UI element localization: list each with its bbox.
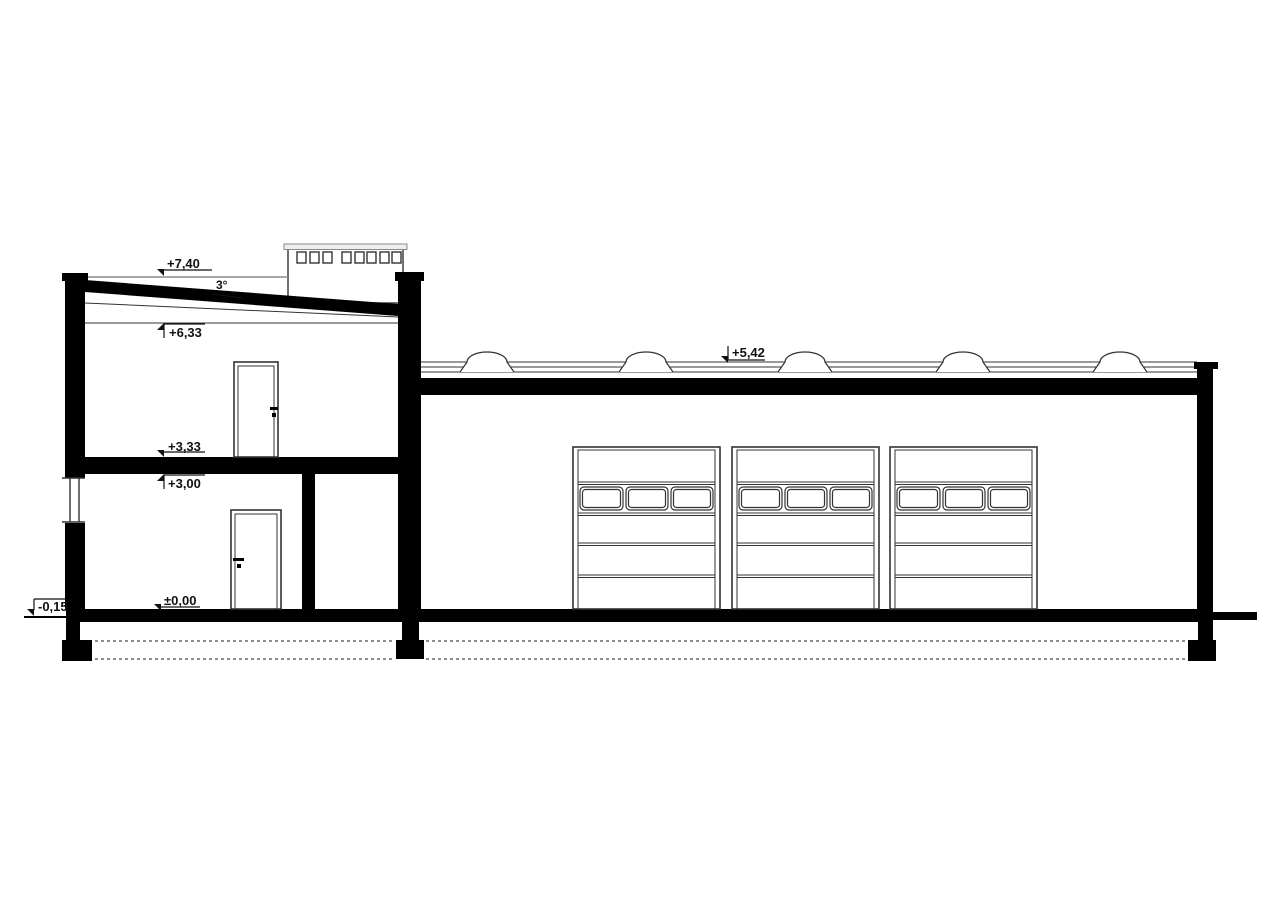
roof-vent-openings [297,252,401,263]
vent-opening [392,252,401,263]
left-wall-lower [65,523,85,609]
facade-window [62,478,85,522]
vent-opening [367,252,376,263]
door-window-row [580,487,713,510]
vent-opening [342,252,351,263]
sectional-doors [573,447,1037,609]
stem-middle [402,620,419,640]
level-label-hall-roof: +5,42 [732,346,765,359]
door-window [897,487,940,510]
middle-wall-cap [395,272,424,281]
interior-door-ground [231,510,281,609]
level-label-grade: -0,15 [38,600,68,613]
vent-opening [380,252,389,263]
footing-left [62,640,92,661]
intermediate-floor-slab [85,457,398,474]
hall-roof-slab [421,378,1197,395]
sectional-door [890,447,1037,609]
grade-line-right [1213,612,1257,620]
level-label-upper-ceiling: +6,33 [169,326,202,339]
door-window [830,487,872,510]
door-lock-icon [272,413,276,417]
footing-middle [396,640,424,659]
roof-slope-label: 3° [216,279,227,291]
door-window [671,487,713,510]
vent-structure-cap [284,244,407,250]
sectional-door [573,447,720,609]
door-window-row [739,487,872,510]
left-block-group [62,244,424,622]
door-window [943,487,985,510]
door-handle-icon [233,558,244,561]
level-label-parapet: +7,40 [167,257,200,270]
ground-slab [66,609,1213,622]
interior-partition-wall [302,474,315,609]
door-window [580,487,623,510]
middle-wall [398,281,421,622]
foundation-dashed-lines [95,641,1186,659]
level-label-ground-ceiling: +3,00 [168,477,201,490]
door-window [785,487,827,510]
roof-vent-structure [284,244,407,303]
door-window [739,487,782,510]
interior-door-upper [234,362,278,457]
hall-block-group [421,352,1218,622]
skylight-dome [1093,352,1147,372]
right-wall-cap [1194,362,1218,369]
door-window-row [897,487,1030,510]
door-window [988,487,1030,510]
cross-section-drawing: +7,40 3° +6,33 +3,33 +3,00 ±0,00 -0,15 +… [0,0,1280,905]
stem-right [1198,620,1213,640]
door-window [626,487,668,510]
door-handle-icon [270,407,278,410]
left-wall-cap [62,273,88,281]
right-wall [1197,368,1213,622]
foundation-group [24,609,1257,661]
vent-opening [355,252,364,263]
level-label-ground-floor: ±0,00 [164,594,196,607]
skylight-dome [778,352,832,372]
grade-line-left [24,616,66,618]
vent-opening [323,252,332,263]
door-lock-icon [237,564,241,568]
level-label-upper-floor: +3,33 [168,440,201,453]
vent-opening [310,252,319,263]
skylight-dome [936,352,990,372]
sectional-door [732,447,879,609]
left-wall-upper [65,281,85,478]
skylight-dome [619,352,673,372]
stem-left [66,620,80,640]
skylight-dome [460,352,514,372]
vent-opening [297,252,306,263]
footing-right [1188,640,1216,661]
